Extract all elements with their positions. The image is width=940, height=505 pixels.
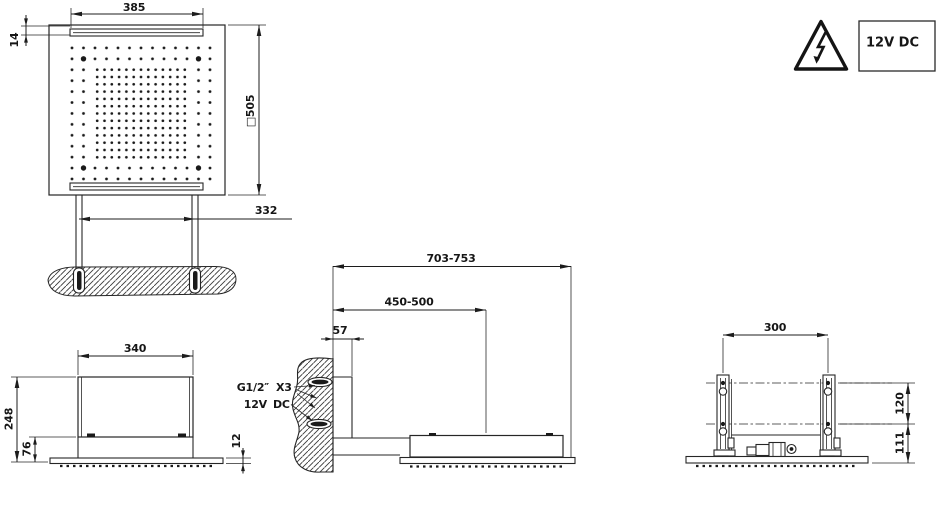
mounting-bracket-right (820, 375, 841, 460)
water-connection-count-label: X3 (276, 381, 292, 394)
dim-label: 57 (333, 324, 348, 337)
water-connection-thread-label: G1/2″ (237, 381, 270, 394)
dimension-332: 332 (79, 204, 292, 219)
centerlines (706, 383, 892, 424)
technical-drawing-sheet: 385 14 □505 332 (0, 0, 940, 505)
power-type-label: DC (273, 398, 290, 411)
wall-flange (333, 377, 352, 438)
dimension-12: 12 (226, 434, 251, 474)
dimension-505: □505 (228, 25, 266, 195)
dim-label: 111 (893, 432, 906, 454)
dimension-703-753: 703-753 (333, 252, 571, 457)
water-supply-pipes (76, 195, 198, 269)
shower-plate-side (50, 458, 223, 466)
solenoid-valve (747, 443, 796, 457)
dim-label: 703-753 (426, 252, 475, 265)
dim-label: 76 (20, 441, 33, 456)
power-rating-box: 12V DC (859, 21, 935, 71)
shower-installation-drawing: 385 14 □505 332 (0, 0, 940, 505)
dimension-111: 111 (872, 424, 915, 463)
dimension-385: 385 (71, 1, 203, 28)
power-rating-label: 12V DC (866, 36, 919, 51)
installation-view: G1/2″ X3 12V DC (237, 252, 575, 472)
power-inlet-port-lower (307, 419, 331, 428)
dimension-300: 300 (723, 321, 828, 373)
led-nozzle (196, 56, 201, 61)
dim-label: 120 (893, 392, 906, 415)
dim-label: 450-500 (384, 296, 434, 309)
led-nozzle (81, 165, 86, 170)
side-view: 340 248 76 12 (2, 342, 251, 474)
spray-nozzle-grid (66, 42, 216, 184)
led-nozzle (81, 56, 86, 61)
dim-label: 14 (8, 32, 21, 47)
head-box-front (732, 379, 821, 453)
dim-label: 12 (230, 434, 243, 449)
high-voltage-icon (796, 22, 847, 70)
shower-arm (333, 436, 410, 455)
power-voltage-label: 12V (244, 398, 268, 411)
dim-label: 385 (123, 1, 145, 14)
electrical-warning: 12V DC (796, 21, 936, 71)
water-inlet-port-upper (308, 377, 332, 386)
mixer-body (78, 377, 193, 458)
plan-view: 385 14 □505 332 (8, 1, 292, 296)
dimension-340: 340 (78, 342, 193, 375)
dimension-120: 120 (840, 383, 915, 424)
dimension-450-500: 450-500 (333, 296, 486, 434)
dim-label: □505 (244, 95, 257, 128)
led-nozzle (196, 165, 201, 170)
shower-head-side (400, 433, 575, 467)
waterfall-slot-top (70, 29, 203, 36)
dim-label: 332 (255, 204, 277, 217)
ceiling-anchor-left (74, 268, 85, 293)
dimension-248: 248 (2, 377, 76, 462)
shower-plate-front (686, 457, 868, 467)
wall-section (292, 358, 333, 472)
dim-label: 248 (2, 408, 15, 430)
dim-label: 340 (124, 342, 147, 355)
front-view: 300 120 111 (686, 321, 915, 466)
ceiling-anchor-right (190, 268, 201, 293)
dim-label: 300 (764, 321, 787, 334)
waterfall-slot-bottom (70, 183, 203, 190)
